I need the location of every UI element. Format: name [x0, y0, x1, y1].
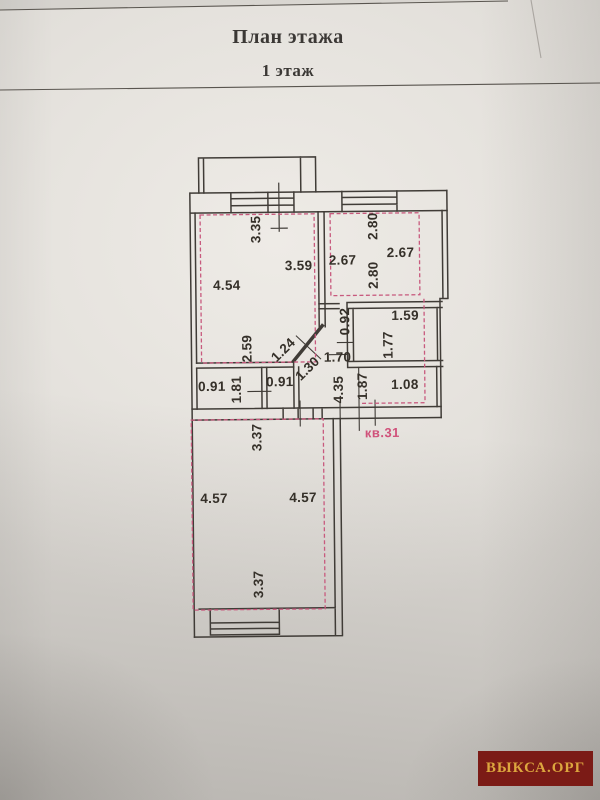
dimension-label: 1.08 [391, 377, 419, 392]
balcony [198, 157, 315, 193]
dimension-label: 2.67 [329, 252, 357, 267]
dimension-label: 0.92 [337, 308, 352, 336]
dimension-label: 4.54 [213, 278, 241, 293]
dimension-label: 1.59 [391, 308, 419, 323]
hall-bottom-wall [192, 407, 441, 421]
dimension-label: 1.87 [355, 373, 370, 401]
window-bottom-room [210, 608, 279, 635]
dimension-label: 4.35 [331, 376, 346, 404]
right-exterior-wall [435, 190, 449, 417]
dimension-label: 2.80 [365, 212, 380, 240]
dimension-label: 2.67 [387, 245, 415, 260]
dimension-label: 3.37 [251, 571, 266, 599]
balcony-door-mark [271, 183, 288, 231]
dimension-label: 3.35 [248, 215, 263, 243]
diagonal-wall [293, 326, 322, 361]
dimension-label: 0.91 [266, 374, 294, 389]
dimension-label: 1.70 [324, 349, 352, 364]
kitchen-bottom-wall [319, 304, 339, 309]
bottom-room-walls [192, 419, 342, 638]
dimension-label: 3.59 [285, 258, 313, 273]
photographed-floor-plan-page: План этажа 1 этаж [0, 0, 600, 800]
window-kitchen [342, 191, 397, 212]
dimension-label: 2.59 [239, 335, 254, 363]
window-living-room [231, 192, 294, 213]
dimension-label: 1.77 [380, 331, 395, 359]
dimension-labels: 3.354.543.592.672.802.672.802.590.921.59… [196, 212, 421, 599]
dimension-label: 4.57 [289, 490, 317, 505]
apartment-number-label: кв.31 [365, 425, 400, 440]
page-fold-edge [531, 0, 541, 58]
top-exterior-wall [191, 190, 447, 213]
dimension-label: 3.37 [249, 424, 264, 452]
dimension-label: 4.57 [200, 491, 228, 506]
left-exterior-wall [190, 193, 200, 637]
dimension-label: 1.81 [229, 376, 244, 404]
dimension-label: 0.91 [198, 379, 226, 394]
header-rule-lines [0, 0, 600, 90]
watermark-badge: ВЫКСА.ОРГ [478, 751, 593, 786]
floor-plan-drawing: кв.31 3.354.543.592.672.802.672.802.590.… [0, 0, 600, 800]
dimension-label: 2.80 [366, 261, 381, 289]
